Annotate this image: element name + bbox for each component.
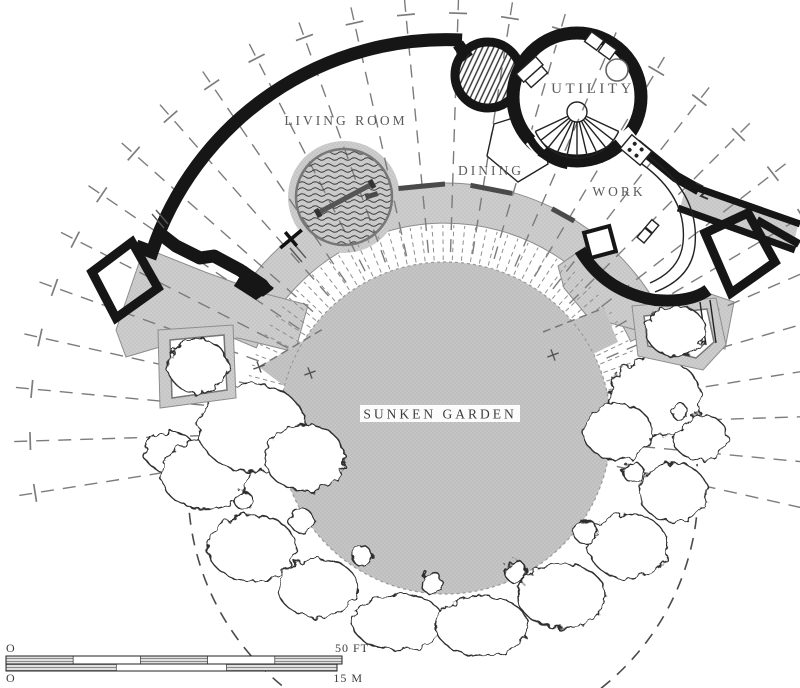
dining-label: DINING [458, 163, 524, 178]
survey-cross-tick [164, 111, 178, 123]
meters-segment [116, 664, 226, 671]
feet-zero-label: O [6, 641, 16, 655]
slope-tick [505, 239, 518, 272]
slope-tick [479, 229, 486, 263]
feet-segment [73, 656, 140, 664]
survey-cross-tick [204, 80, 219, 90]
slope-tick [399, 230, 407, 264]
bush-outline [421, 572, 443, 594]
survey-cross-tick [34, 484, 37, 502]
bush-outline [352, 546, 372, 566]
survey-cross-tick [397, 14, 415, 16]
slope-tick [304, 282, 328, 307]
feet-segment [208, 656, 275, 664]
slope-tick [329, 261, 349, 290]
survey-cross-tick [346, 21, 364, 25]
sunken-garden-circle [279, 262, 611, 594]
feet-segment [140, 656, 207, 664]
survey-cross-tick [692, 95, 706, 106]
survey-cross-tick [31, 380, 33, 398]
shrub-outline [584, 404, 652, 460]
slope-tick [530, 253, 548, 283]
utility-label: UTILITY [551, 81, 635, 97]
shrub-outline [518, 564, 606, 628]
slope-tick [538, 259, 557, 288]
work-storage-square [584, 226, 616, 258]
water-heater-circle [606, 59, 628, 81]
survey-cross-tick [38, 329, 42, 347]
bush-outline [505, 561, 527, 583]
meters-max-label: 15 M [333, 671, 363, 685]
bush-outline [234, 491, 252, 509]
shrub-outline [436, 596, 528, 656]
slope-tick [497, 235, 508, 268]
survey-cross-tick [767, 167, 778, 181]
living-room-label: LIVING ROOM [284, 113, 407, 128]
meters-segment [227, 664, 337, 671]
survey-cross-tick [296, 34, 313, 40]
slope-tick [312, 275, 335, 301]
bush-outline [574, 520, 598, 544]
slope-tick [470, 227, 475, 262]
bush-outline [623, 462, 643, 482]
planter-tree [646, 306, 706, 356]
survey-cross-tick [30, 432, 31, 450]
scale-bar: O 50 FT O 15 M [6, 641, 369, 685]
sunken-garden-label: SUNKEN GARDEN [363, 407, 516, 422]
survey-cross-tick [249, 54, 265, 62]
work-label: WORK [592, 184, 645, 199]
slope-tick [389, 233, 399, 267]
slope-tick [432, 225, 434, 260]
shrub-outline [278, 559, 358, 617]
shrub-outline [265, 425, 345, 491]
work-sink [637, 220, 659, 243]
bush-outline [672, 404, 688, 420]
feet-max-label: 50 FT [335, 641, 369, 655]
planter-tree [168, 339, 228, 393]
feet-segment [6, 656, 73, 664]
shrub-outline [639, 463, 707, 521]
floor-plan-drawing: LIVING ROOM DINING UTILITY WORK SUNKEN G… [0, 0, 800, 688]
hemicycle-floor-plan: LIVING ROOM DINING UTILITY WORK SUNKEN G… [0, 0, 800, 688]
survey-cross-tick [128, 147, 140, 161]
slope-tick [378, 236, 390, 269]
slope-tick [421, 226, 425, 261]
bush-outline [290, 509, 314, 533]
meters-segment [6, 664, 116, 671]
slope-tick [339, 255, 357, 285]
survey-cross-tick [649, 66, 664, 75]
feet-segment [275, 656, 342, 664]
meters-zero-label: O [6, 671, 16, 685]
survey-cross-tick [97, 187, 107, 202]
survey-cross-tick [51, 279, 57, 296]
slope-tick [461, 226, 464, 261]
slope-tick [410, 228, 416, 262]
survey-cross-tick [449, 13, 467, 14]
shrub-outline [588, 514, 668, 578]
slope-tick [600, 351, 632, 364]
slope-tick [452, 225, 454, 260]
survey-cross-tick [71, 232, 79, 248]
shrub-outline [208, 515, 296, 581]
storage-square [584, 226, 616, 258]
survey-cross-tick [501, 17, 519, 20]
slope-tick [488, 232, 497, 266]
